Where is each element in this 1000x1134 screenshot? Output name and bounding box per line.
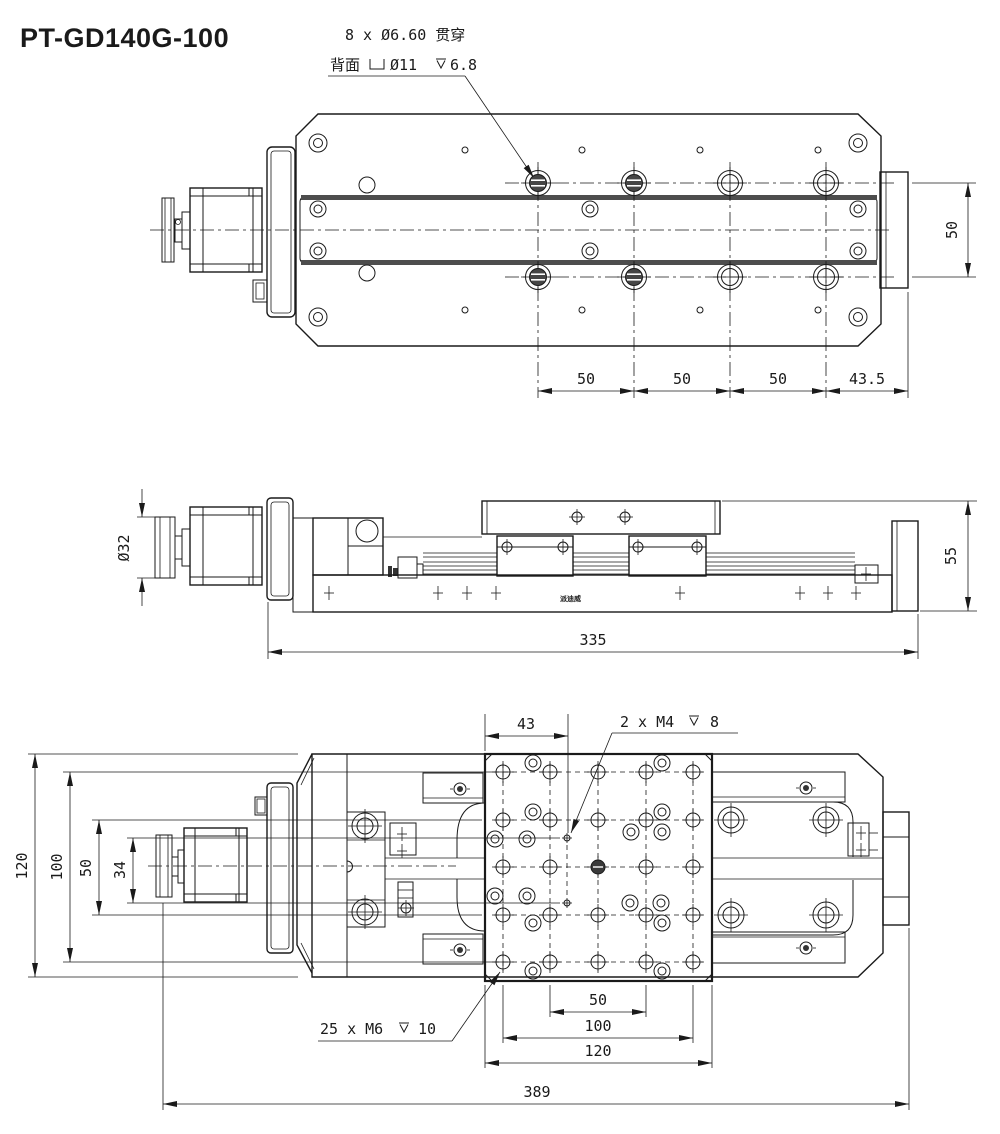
dim-offset: 43 <box>517 715 535 733</box>
rail-bottom <box>301 260 877 265</box>
stop-bracket <box>398 882 413 917</box>
counterbore-note-depth: 6.8 <box>450 56 477 74</box>
counterbore-symbol-icon <box>370 59 384 69</box>
dim-width-100: 100 <box>48 853 66 880</box>
table-plate <box>485 754 712 981</box>
counterbore-note-line1: 8 x Ø6.60 贯穿 <box>345 26 465 44</box>
base-bar <box>313 575 892 612</box>
depth-symbol-icon <box>399 1023 409 1032</box>
side-view-motor <box>155 498 293 600</box>
m6-note-depth: 10 <box>418 1020 436 1038</box>
side-view: 派迪威 Ø32 55 335 <box>115 489 977 659</box>
top-view-motor <box>162 147 295 317</box>
dim-width-120: 120 <box>13 852 31 879</box>
mount-plate <box>297 754 312 973</box>
m4-note-depth: 8 <box>710 713 719 731</box>
limit-switch <box>848 823 869 856</box>
bottom-view: 120 100 50 34 43 2 x M4 8 25 x M6 10 50 <box>13 713 909 1110</box>
dim-grid-50: 50 <box>589 991 607 1009</box>
bottom-view-stage <box>148 754 909 977</box>
drawing-page: PT-GD140G-100 8 x Ø6.60 贯穿 背面 Ø11 6.8 <box>0 0 1000 1134</box>
dim-end: 43.5 <box>849 370 885 388</box>
end-cap <box>883 812 909 925</box>
counterbore-note-dia: Ø11 <box>390 56 417 74</box>
dim-width-50: 50 <box>77 859 95 877</box>
dim-pitch-2: 50 <box>673 370 691 388</box>
drawing-title: PT-GD140G-100 <box>20 23 229 53</box>
rail-top <box>301 195 877 200</box>
m4-holes <box>562 833 572 908</box>
brand-label: 派迪威 <box>560 594 581 603</box>
depth-symbol-icon <box>436 59 446 68</box>
engineering-drawing: PT-GD140G-100 8 x Ø6.60 贯穿 背面 Ø11 6.8 <box>0 0 1000 1134</box>
end-cap <box>892 521 918 611</box>
m6-note-label: 25 x M6 <box>320 1020 383 1038</box>
dim-grid-100: 100 <box>584 1017 611 1035</box>
dim-width-34: 34 <box>111 861 129 879</box>
carriage-block <box>629 536 706 576</box>
dim-length: 335 <box>579 631 606 649</box>
dim-height: 55 <box>942 547 960 565</box>
dim-overall: 389 <box>523 1083 550 1101</box>
depth-symbol-icon <box>689 716 699 725</box>
bottom-view-motor <box>156 783 293 953</box>
dim-row-spacing: 50 <box>943 221 961 239</box>
lead-screw <box>423 553 878 583</box>
dim-table-120: 120 <box>584 1042 611 1060</box>
leader-arrow <box>452 972 500 1041</box>
dim-pitch-1: 50 <box>577 370 595 388</box>
top-view: 8 x Ø6.60 贯穿 背面 Ø11 6.8 <box>150 26 976 398</box>
counterbore-note: 8 x Ø6.60 贯穿 背面 Ø11 6.8 <box>328 26 534 178</box>
counterbore-note-prefix: 背面 <box>330 56 360 74</box>
top-view-dimensions: 50 50 50 43.5 50 <box>538 183 976 398</box>
table-plate <box>482 501 720 534</box>
m4-note-label: 2 x M4 <box>620 713 674 731</box>
dim-pitch-3: 50 <box>769 370 787 388</box>
side-view-stage: 派迪威 <box>293 501 918 612</box>
dim-knob-dia: Ø32 <box>115 534 133 561</box>
leader-arrow <box>465 76 534 178</box>
sensor-bracket <box>390 823 416 855</box>
